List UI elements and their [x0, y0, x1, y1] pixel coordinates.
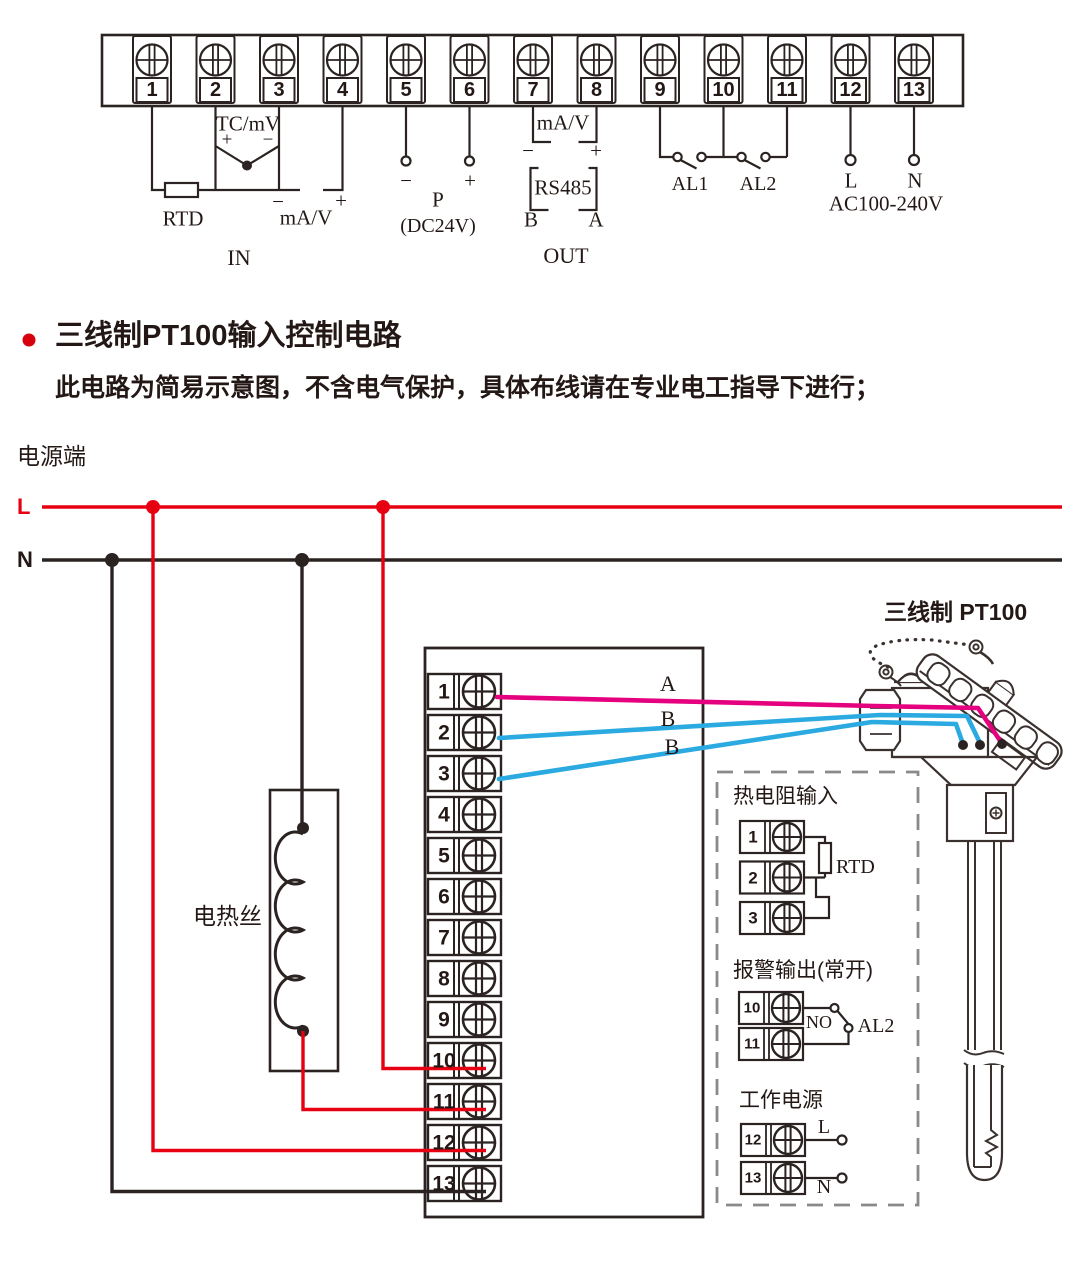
live-rail-label: L — [17, 495, 30, 519]
rtd-terminal-number: 2 — [748, 869, 757, 886]
main-terminal-number: 13 — [432, 1173, 455, 1194]
main-terminal-number: 10 — [432, 1050, 455, 1071]
main-terminal-number: 1 — [438, 681, 450, 702]
alarm-section-title: 报警输出(常开) — [733, 959, 873, 982]
main-terminal-number: 8 — [438, 968, 450, 989]
main-terminal-number: 6 — [438, 886, 450, 907]
p-label: P — [432, 188, 444, 211]
supply-terminal-number: 13 — [745, 1171, 762, 1186]
top-terminal-number: 6 — [464, 80, 475, 100]
mav-out-label: mA/V — [537, 111, 590, 134]
main-terminal-number: 11 — [433, 1091, 455, 1112]
wire-b-lower-label: B — [665, 735, 680, 759]
power-terminal-label: 电源端 — [17, 444, 86, 469]
al1-label: AL1 — [672, 173, 709, 195]
mav-in-plus-label: + — [335, 189, 347, 212]
bullet-icon — [23, 334, 36, 347]
supply-live-label: L — [818, 1116, 830, 1138]
top-terminal-number: 12 — [839, 80, 861, 100]
rs485-label: RS485 — [534, 176, 591, 199]
in-label: IN — [227, 246, 250, 270]
top-terminal-number: 1 — [146, 80, 157, 100]
rs485-a-label: A — [588, 208, 603, 231]
main-terminal-number: 12 — [432, 1132, 455, 1153]
section-note: 此电路为简易示意图，不含电气保护，具体布线请在专业电工指导下进行； — [55, 375, 880, 403]
top-terminal-number: 10 — [712, 80, 734, 100]
rtd-terminal-number: 3 — [748, 910, 757, 927]
tc-minus-label: − — [263, 131, 274, 152]
top-terminal-number: 8 — [591, 80, 602, 100]
wire-a-label: A — [660, 672, 676, 696]
dc24v-label: (DC24V) — [400, 215, 476, 237]
main-terminal-number: 2 — [438, 722, 450, 743]
supply-section-title: 工作电源 — [739, 1089, 823, 1112]
rtd-label: RTD — [163, 207, 204, 230]
sensor-label: 三线制 PT100 — [884, 600, 1027, 625]
mav-out-plus-label: + — [590, 139, 602, 162]
rs485-b-label: B — [524, 208, 538, 231]
alarm-terminal-number: 11 — [744, 1037, 760, 1052]
p-plus-label: + — [464, 169, 476, 192]
main-terminal-number: 9 — [438, 1009, 450, 1030]
top-terminal-number: 7 — [527, 80, 538, 100]
main-terminal-number: 5 — [438, 845, 450, 866]
supply-neutral-label: N — [817, 1176, 831, 1198]
top-terminal-number: 2 — [210, 80, 221, 100]
rtd-terminal-number: 1 — [748, 829, 757, 846]
p-minus-label: − — [400, 169, 412, 192]
tc-plus-label: + — [222, 131, 233, 152]
top-terminal-number: 9 — [654, 80, 665, 100]
heater-label: 电热丝 — [193, 904, 262, 929]
top-terminal-number: 3 — [273, 80, 284, 100]
al2-label: AL2 — [740, 173, 777, 195]
power-rails — [42, 500, 1062, 567]
out-label: OUT — [543, 244, 588, 268]
main-terminal-number: 4 — [438, 804, 450, 825]
supply-terminal-number: 12 — [745, 1133, 762, 1148]
live-top-label: L — [845, 169, 858, 192]
neutral-top-label: N — [907, 169, 922, 192]
wire-b-upper-label: B — [661, 707, 676, 731]
alarm-terminal-number: 10 — [744, 1001, 761, 1016]
mav-out-minus-label: − — [522, 139, 534, 162]
top-terminal-number: 5 — [400, 80, 411, 100]
main-terminal-number: 3 — [438, 763, 450, 784]
main-terminal-number: 7 — [438, 927, 450, 948]
rtd-detail-label: RTD — [836, 856, 875, 878]
top-terminal-number: 11 — [776, 80, 797, 100]
top-terminal-number: 4 — [337, 80, 348, 100]
wiring-diagram-page: TC/mV + − RTD − mA/V + IN − + P (DC24V) … — [0, 0, 1080, 1286]
neutral-rail-label: N — [17, 548, 33, 572]
al2-detail-label: AL2 — [858, 1015, 895, 1037]
section-title: 三线制PT100输入控制电路 — [55, 321, 401, 353]
mav-in-label: mA/V — [280, 206, 333, 229]
no-label: NO — [806, 1013, 832, 1033]
top-terminal-number: 13 — [903, 80, 925, 100]
ac-range-label: AC100-240V — [829, 192, 943, 215]
rtd-section-title: 热电阻输入 — [733, 785, 838, 808]
